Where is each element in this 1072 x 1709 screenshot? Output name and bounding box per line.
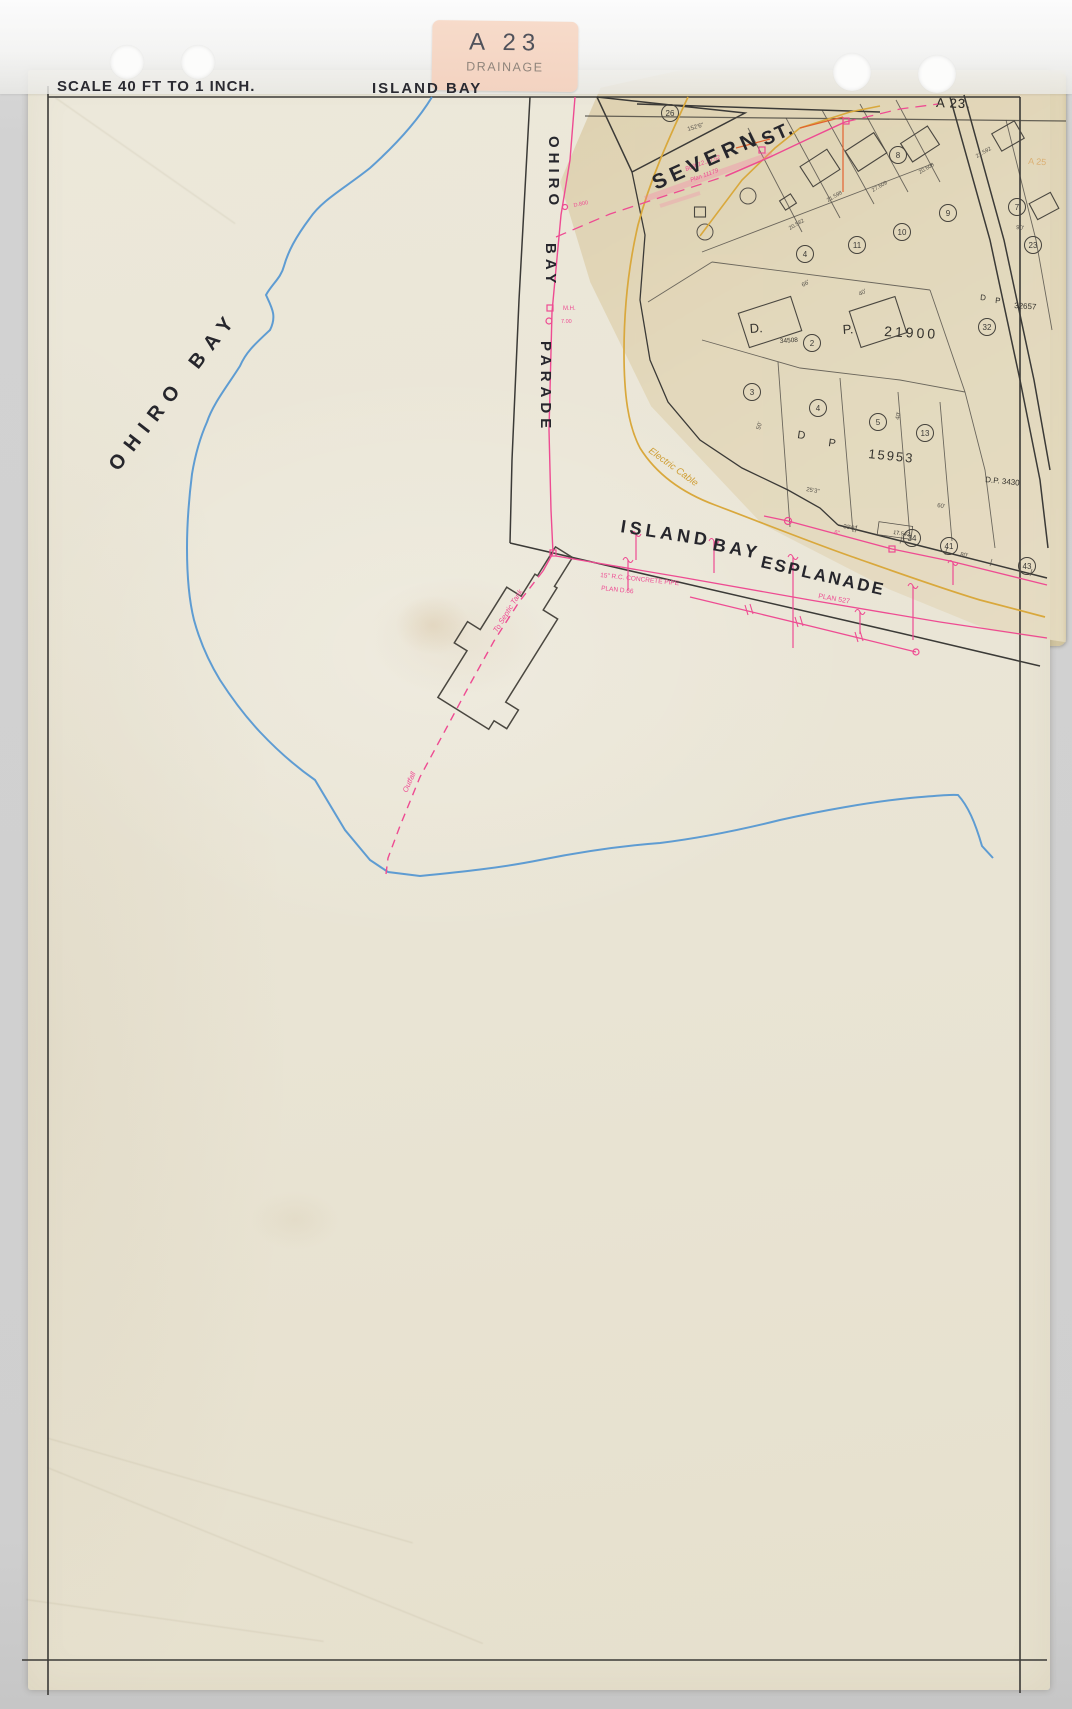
scale-label: SCALE 40 FT TO 1 INCH. [57, 78, 255, 95]
scanned-drainage-map: 41110972332234513268344143D.P.2190034508… [0, 0, 1072, 1709]
sheet-title: ISLAND BAY [372, 80, 482, 97]
punch-hole [833, 53, 871, 91]
paper-stain [250, 1190, 340, 1250]
paper-stain [395, 595, 470, 655]
sticker-reference: A 23 [432, 28, 578, 58]
sticker-category: DRAINAGE [432, 59, 578, 75]
punch-hole [918, 55, 956, 93]
punch-hole [181, 45, 215, 79]
punch-hole [110, 45, 144, 79]
